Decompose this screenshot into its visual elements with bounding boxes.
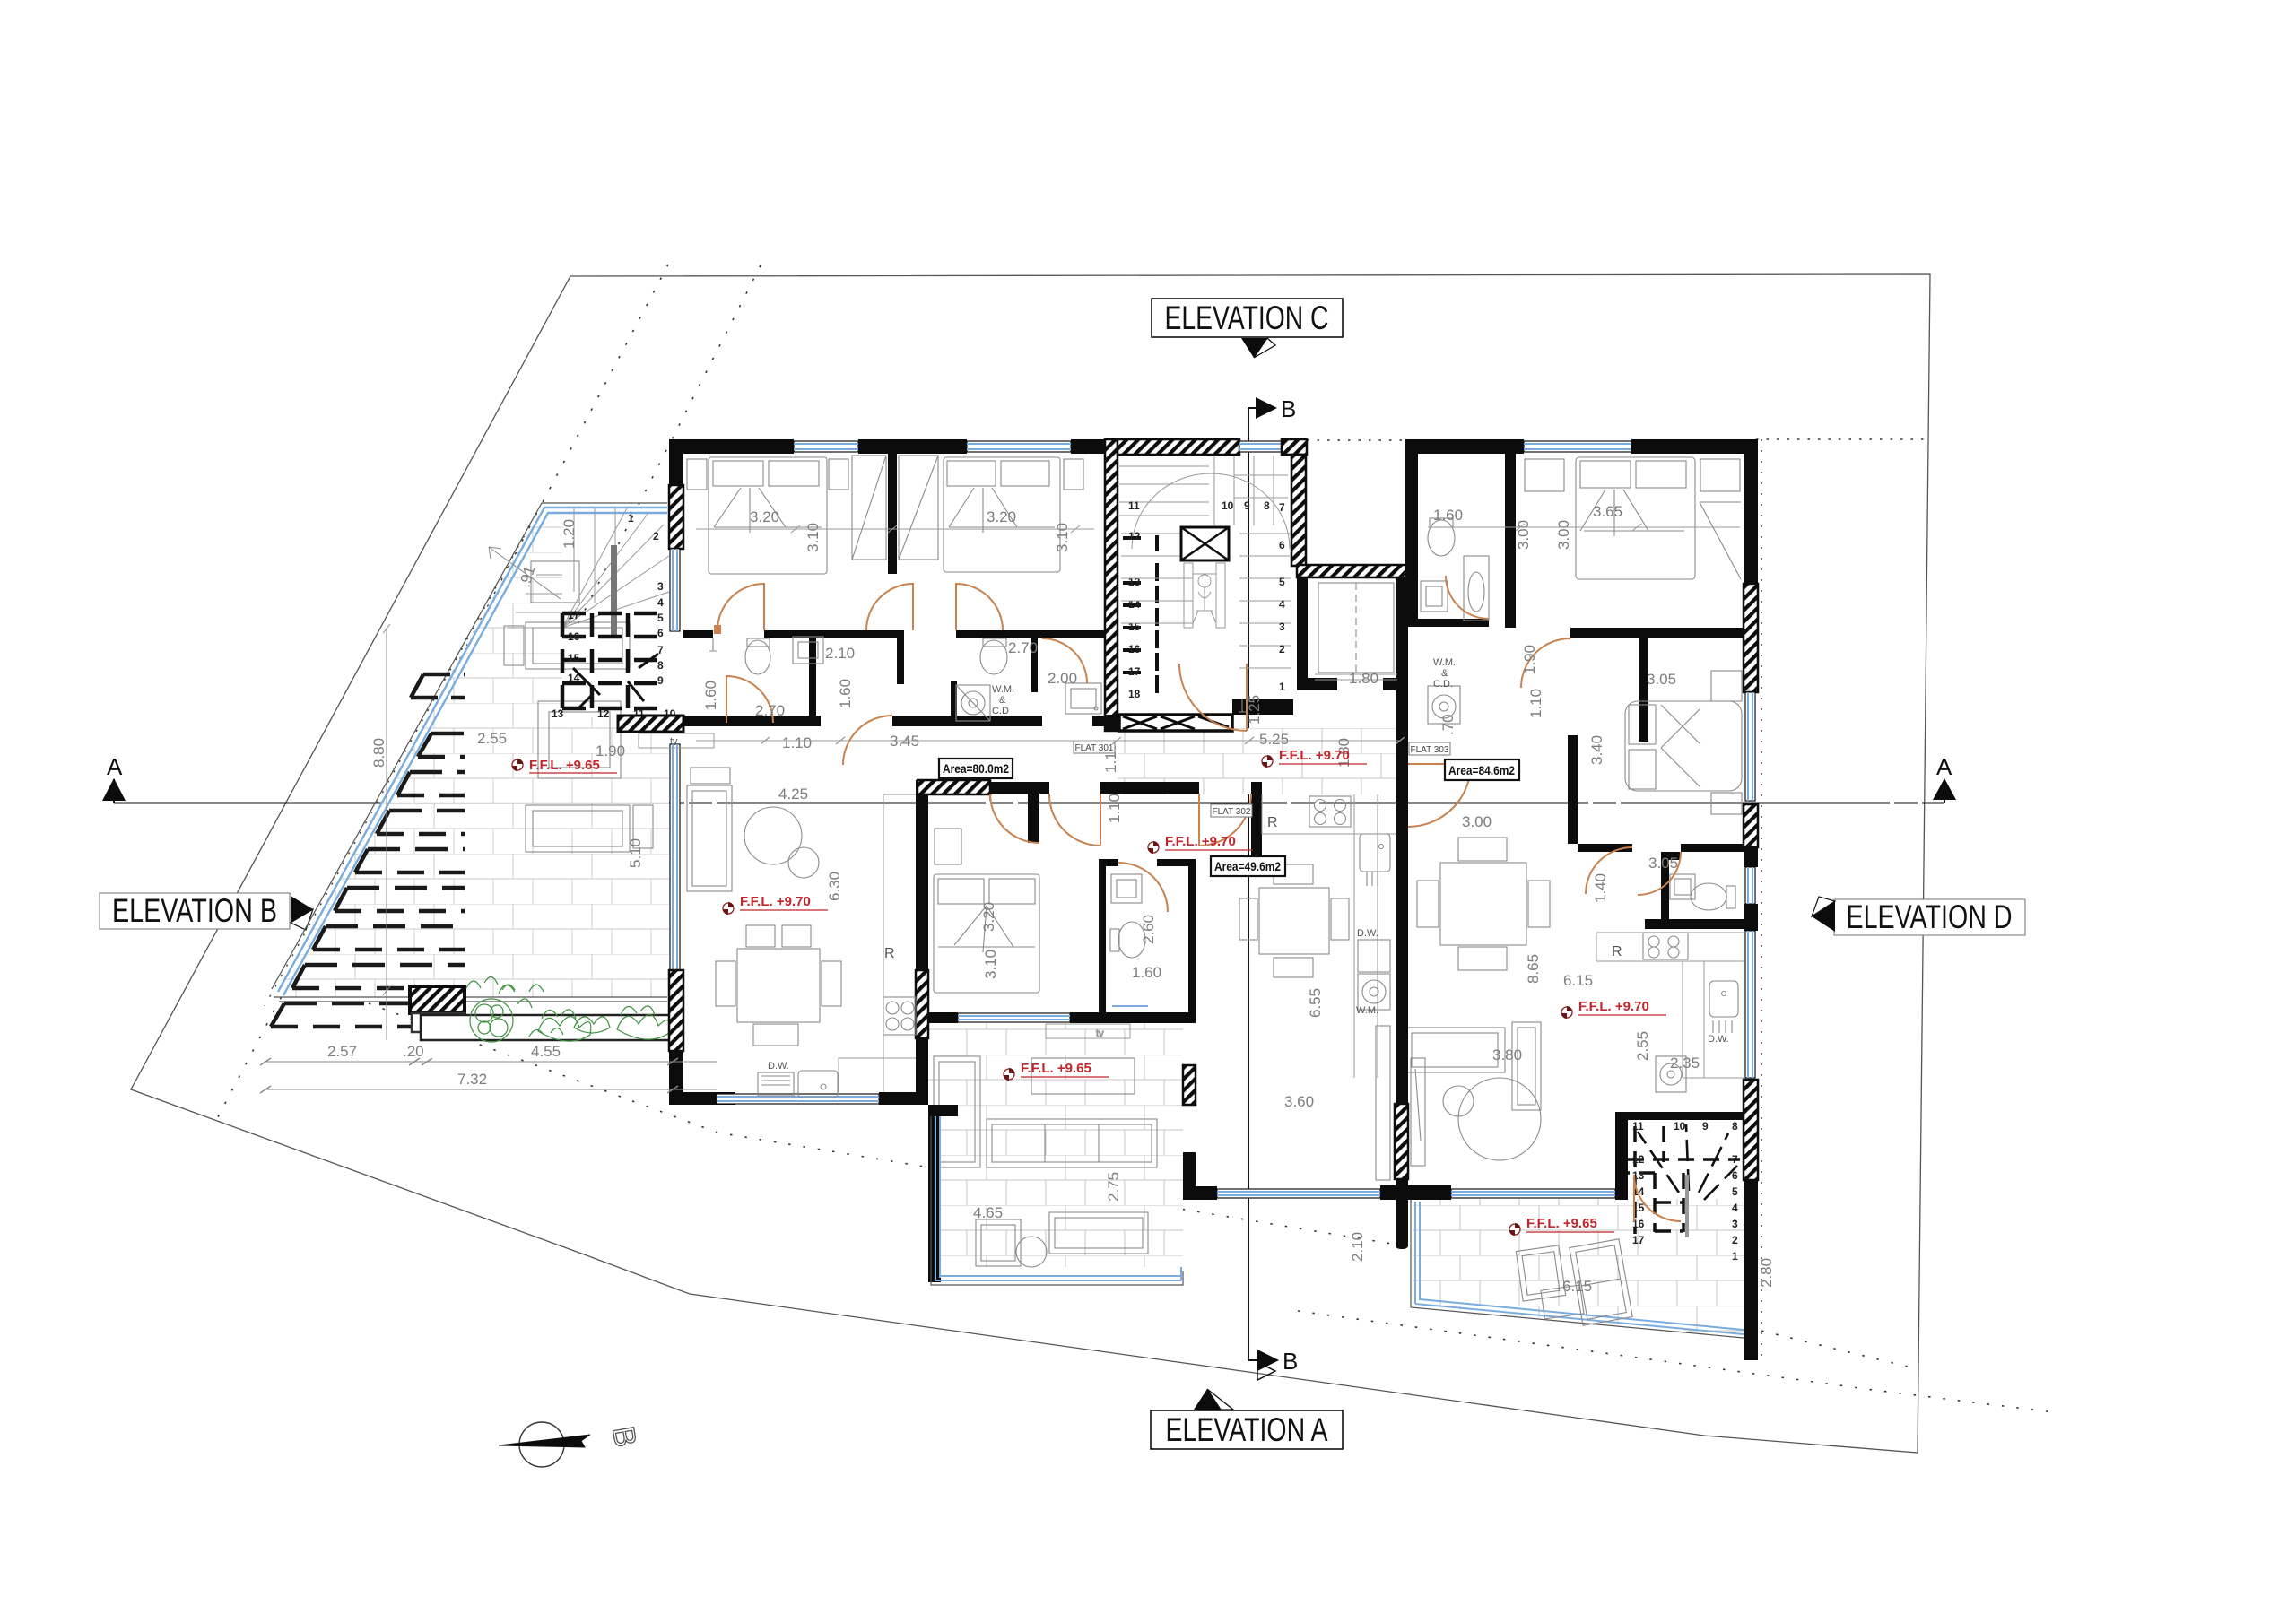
- svg-text:F.F.L. +9.70: F.F.L. +9.70: [740, 894, 811, 909]
- svg-text:R: R: [884, 946, 895, 961]
- svg-text:1: 1: [628, 512, 634, 525]
- svg-text:2.75: 2.75: [1105, 1172, 1122, 1202]
- svg-text:3.05: 3.05: [1648, 855, 1678, 872]
- svg-text:2.55: 2.55: [1634, 1031, 1651, 1061]
- svg-text:2.70: 2.70: [1008, 639, 1038, 656]
- svg-text:Area=84.6m2: Area=84.6m2: [1448, 764, 1515, 777]
- svg-text:FLAT 301: FLAT 301: [1075, 743, 1114, 753]
- svg-text:6: 6: [657, 627, 664, 639]
- svg-text:3.10: 3.10: [982, 950, 999, 979]
- svg-text:8: 8: [1732, 1120, 1738, 1133]
- svg-text:2.00: 2.00: [1048, 670, 1077, 687]
- svg-text:14: 14: [568, 672, 580, 684]
- svg-text:1.40: 1.40: [1592, 873, 1609, 903]
- svg-text:W.M.: W.M.: [1356, 1005, 1378, 1016]
- svg-text:6: 6: [1732, 1169, 1738, 1182]
- svg-text:10: 10: [1222, 499, 1234, 512]
- svg-text:6.15: 6.15: [1562, 1278, 1592, 1295]
- svg-text:2.80: 2.80: [1758, 1258, 1775, 1288]
- svg-text:D.W.: D.W.: [1708, 1034, 1729, 1045]
- svg-text:17: 17: [1128, 665, 1141, 678]
- svg-text:2.10: 2.10: [825, 645, 855, 662]
- svg-text:3.20: 3.20: [750, 508, 779, 525]
- svg-text:13: 13: [1128, 576, 1141, 588]
- svg-text:5: 5: [657, 612, 664, 624]
- svg-text:1.60: 1.60: [1132, 964, 1161, 981]
- svg-text:W.M.: W.M.: [1433, 657, 1456, 668]
- svg-text:2: 2: [1732, 1234, 1738, 1246]
- svg-text:2.60: 2.60: [1140, 915, 1157, 944]
- svg-text:A: A: [1936, 753, 1952, 780]
- svg-text:9: 9: [657, 674, 664, 687]
- svg-text:2: 2: [653, 530, 659, 542]
- svg-text:3.20: 3.20: [980, 902, 997, 932]
- svg-text:12: 12: [597, 707, 610, 720]
- svg-text:3: 3: [1279, 621, 1285, 633]
- svg-text:1.25: 1.25: [1246, 695, 1263, 725]
- svg-text:ELEVATION B: ELEVATION B: [112, 892, 277, 929]
- svg-text:10: 10: [1674, 1120, 1686, 1133]
- svg-text:11: 11: [1128, 499, 1140, 512]
- svg-text:8.80: 8.80: [370, 738, 387, 768]
- svg-text:C.D.: C.D.: [1433, 679, 1453, 690]
- svg-text:FLAT 302: FLAT 302: [1213, 807, 1251, 817]
- svg-text:2.57: 2.57: [327, 1043, 357, 1060]
- svg-text:&: &: [999, 695, 1006, 706]
- svg-text:3.65: 3.65: [1593, 503, 1622, 520]
- svg-text:5.25: 5.25: [1259, 731, 1289, 748]
- svg-text:3.10: 3.10: [804, 523, 822, 552]
- svg-text:tv: tv: [670, 736, 678, 747]
- svg-text:4: 4: [657, 596, 664, 609]
- svg-text:F.F.L. +9.65: F.F.L. +9.65: [1021, 1061, 1091, 1076]
- svg-text:1.90: 1.90: [596, 742, 625, 759]
- svg-text:18: 18: [1128, 688, 1141, 700]
- svg-text:13: 13: [552, 707, 564, 720]
- svg-text:B: B: [1283, 1348, 1298, 1375]
- svg-text:D.W.: D.W.: [768, 1061, 789, 1072]
- svg-text:3.00: 3.00: [1555, 520, 1572, 550]
- svg-text:14: 14: [1128, 598, 1141, 611]
- svg-text:11: 11: [1632, 1120, 1644, 1133]
- svg-text:Area=49.6m2: Area=49.6m2: [1214, 860, 1281, 873]
- svg-text:1.60: 1.60: [702, 681, 719, 710]
- svg-text:3: 3: [657, 580, 664, 593]
- svg-text:4: 4: [1279, 598, 1285, 611]
- svg-text:4.55: 4.55: [531, 1043, 561, 1060]
- svg-text:C.D: C.D: [992, 706, 1009, 716]
- svg-text:F.F.L. +9.70: F.F.L. +9.70: [1578, 999, 1649, 1014]
- svg-text:3.20: 3.20: [987, 508, 1016, 525]
- svg-text:17: 17: [568, 609, 580, 621]
- svg-text:2.70: 2.70: [755, 702, 785, 719]
- svg-text:8: 8: [657, 659, 664, 672]
- svg-text:4.25: 4.25: [778, 785, 808, 803]
- svg-text:15: 15: [1128, 621, 1141, 633]
- svg-text:3.60: 3.60: [1284, 1093, 1314, 1110]
- svg-text:D.W.: D.W.: [1357, 928, 1378, 939]
- svg-text:.20: .20: [403, 1043, 424, 1060]
- svg-text:12: 12: [1128, 530, 1141, 542]
- svg-text:16: 16: [1128, 643, 1141, 655]
- svg-text:1.90: 1.90: [1521, 645, 1538, 674]
- svg-text:ELEVATION A: ELEVATION A: [1166, 1411, 1328, 1448]
- svg-text:1.10: 1.10: [1106, 794, 1123, 823]
- svg-text:9: 9: [1244, 499, 1250, 512]
- svg-text:16: 16: [568, 630, 580, 643]
- svg-text:5: 5: [1279, 576, 1285, 588]
- svg-text:7.32: 7.32: [457, 1071, 487, 1088]
- svg-text:R: R: [1267, 815, 1278, 830]
- svg-text:F.F.L. +9.70: F.F.L. +9.70: [1165, 834, 1236, 849]
- svg-text:&: &: [1441, 668, 1448, 679]
- svg-text:W.M.: W.M.: [992, 684, 1014, 695]
- svg-text:1.60: 1.60: [1433, 507, 1463, 524]
- svg-text:12: 12: [1632, 1153, 1645, 1166]
- svg-text:ELEVATION C: ELEVATION C: [1165, 299, 1329, 336]
- svg-text:FLAT 303: FLAT 303: [1411, 745, 1449, 755]
- svg-text:15: 15: [568, 652, 580, 664]
- svg-text:2.55: 2.55: [477, 730, 507, 747]
- svg-text:7: 7: [1732, 1153, 1738, 1166]
- svg-text:6.55: 6.55: [1307, 988, 1324, 1018]
- svg-text:3.00: 3.00: [1462, 813, 1492, 830]
- svg-text:ELEVATION D: ELEVATION D: [1847, 898, 2013, 935]
- svg-text:F.F.L. +9.70: F.F.L. +9.70: [1279, 748, 1350, 763]
- svg-text:6.30: 6.30: [826, 872, 843, 901]
- svg-text:3: 3: [1732, 1218, 1738, 1230]
- svg-text:5: 5: [1732, 1185, 1738, 1198]
- svg-text:3.40: 3.40: [1588, 735, 1605, 765]
- svg-text:1.10: 1.10: [1527, 689, 1544, 718]
- svg-text:1.80: 1.80: [1349, 670, 1378, 687]
- svg-text:9: 9: [1702, 1120, 1709, 1133]
- svg-text:F.F.L. +9.65: F.F.L. +9.65: [1526, 1216, 1597, 1231]
- svg-text:R: R: [1612, 944, 1622, 959]
- svg-text:Area=80.0m2: Area=80.0m2: [943, 762, 1009, 776]
- svg-text:1.60: 1.60: [837, 679, 854, 708]
- svg-text:5.10: 5.10: [627, 838, 644, 868]
- svg-text:8.65: 8.65: [1525, 954, 1542, 984]
- svg-text:6: 6: [1279, 539, 1285, 551]
- svg-text:3.05: 3.05: [1647, 671, 1676, 688]
- svg-text:7: 7: [1279, 501, 1285, 514]
- svg-text:B: B: [1281, 395, 1296, 422]
- svg-text:1.10: 1.10: [782, 734, 812, 751]
- svg-text:2.10: 2.10: [1349, 1232, 1366, 1262]
- svg-text:3.10: 3.10: [1054, 523, 1071, 552]
- svg-text:1.20: 1.20: [561, 519, 578, 549]
- svg-text:F.F.L. +9.65: F.F.L. +9.65: [529, 758, 600, 773]
- svg-text:2: 2: [1279, 643, 1285, 655]
- svg-text:4: 4: [1732, 1202, 1738, 1214]
- svg-text:2.35: 2.35: [1670, 1055, 1700, 1072]
- svg-text:17: 17: [1632, 1234, 1645, 1246]
- svg-text:8: 8: [1264, 499, 1270, 512]
- svg-text:.70: .70: [1439, 714, 1457, 735]
- svg-text:A: A: [107, 753, 123, 780]
- svg-text:1: 1: [1279, 681, 1285, 693]
- svg-text:3.80: 3.80: [1492, 1046, 1522, 1063]
- svg-text:6.15: 6.15: [1563, 972, 1593, 989]
- svg-text:7: 7: [657, 644, 664, 656]
- svg-text:tv: tv: [1096, 1028, 1104, 1039]
- svg-text:4.65: 4.65: [973, 1204, 1003, 1221]
- svg-text:1: 1: [1732, 1250, 1738, 1263]
